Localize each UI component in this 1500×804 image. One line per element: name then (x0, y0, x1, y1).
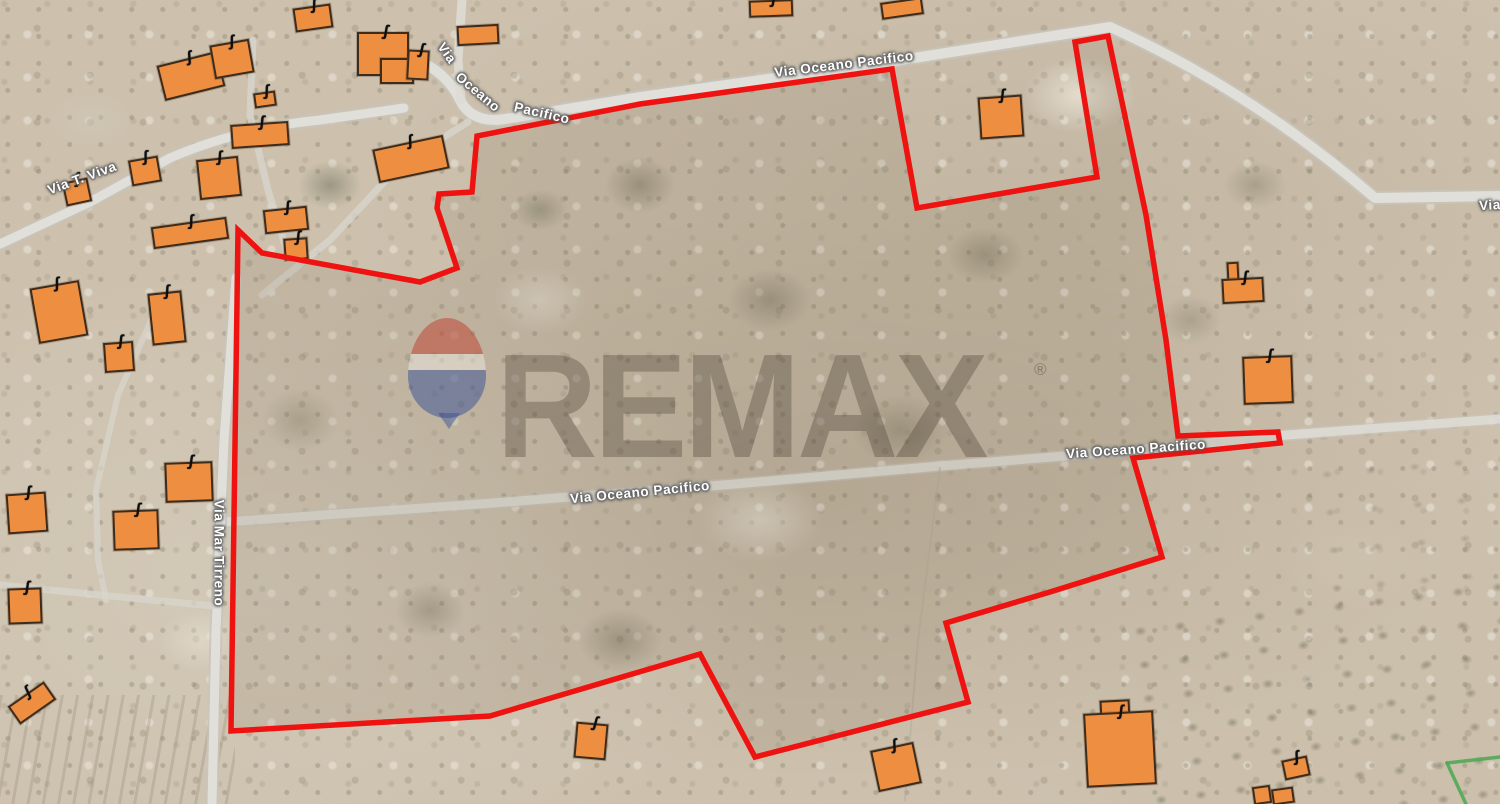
satellite-map-viewport[interactable]: ʃʃʃʃʃʃʃʃʃʃʃʃʃʃʃʃʃʃʃʃʃʃʃʃʃʃʃʃʃʃ Via Ocean… (0, 0, 1500, 804)
building-footprint: ʃ (870, 742, 922, 792)
remax-balloon-icon (438, 413, 460, 429)
building-marker-icon: ʃ (294, 230, 301, 246)
building-marker-icon: ʃ (54, 276, 59, 292)
street-label: Pacifico (513, 99, 572, 126)
building-marker-icon: ʃ (407, 134, 413, 150)
building-marker-icon: ʃ (25, 485, 32, 501)
building-footprint: ʃ (112, 509, 159, 551)
street-label: Via (435, 40, 460, 66)
street-label: Via Oceano Pacifico (569, 478, 710, 506)
building-footprint: ʃ (283, 237, 308, 261)
building-marker-icon: ʃ (187, 454, 195, 471)
building-footprint: ʃ (103, 341, 135, 373)
walking-path (1447, 757, 1500, 763)
building-marker-icon: ʃ (284, 200, 290, 216)
building-marker-icon: ʃ (891, 738, 897, 754)
road-casing (225, 419, 1500, 522)
building-footprint: ʃ (164, 461, 213, 503)
road (225, 419, 1500, 522)
olive-grove (1127, 575, 1500, 804)
building-footprint: ʃ (573, 722, 608, 761)
building-footprint: ʃ (1242, 355, 1294, 405)
building-marker-icon: ʃ (22, 684, 34, 701)
watermark-brand-text: REMAX (496, 347, 985, 467)
building-footprint: ʃ (978, 95, 1025, 140)
building-marker-icon: ʃ (264, 84, 270, 100)
building-marker-icon: ʃ (1241, 270, 1248, 287)
street-label: Via Oceano Pacifico (1066, 437, 1207, 462)
building-marker-icon: ʃ (311, 0, 317, 14)
building-footprint: ʃ (128, 156, 162, 187)
remax-watermark: REMAX ® (400, 305, 1100, 485)
building-marker-icon: ʃ (229, 34, 234, 50)
building-marker-icon: ʃ (23, 580, 31, 597)
walking-path (1447, 763, 1466, 804)
remax-balloon-icon (408, 318, 486, 418)
property-boundary (231, 36, 1280, 757)
building-marker-icon: ʃ (216, 150, 222, 166)
building-footprint (880, 0, 924, 20)
building-footprint: ʃ (7, 587, 42, 624)
building-footprint (457, 24, 500, 46)
building-footprint: ʃ (253, 91, 277, 109)
building-marker-icon: ʃ (591, 715, 600, 732)
street-label: Via Mar Tirreno (212, 500, 227, 607)
building-footprint: ʃ (230, 121, 290, 149)
building-marker-icon: ʃ (999, 88, 1006, 104)
building-marker-icon: ʃ (1294, 750, 1300, 766)
building-marker-icon: ʃ (164, 284, 170, 300)
building-footprint: ʃ (6, 492, 49, 535)
street-label: Via (1479, 197, 1500, 213)
building-marker-icon: ʃ (258, 115, 265, 131)
building-marker-icon: ʃ (186, 50, 192, 66)
olive-grove (1313, 412, 1500, 598)
building-footprint: ʃ (293, 3, 334, 32)
street-label: Via Oceano Pacifico (773, 48, 914, 80)
building-footprint: ʃ (209, 39, 254, 79)
building-footprint: ʃ (1221, 277, 1264, 304)
building-footprint: ʃ (749, 0, 794, 18)
building-marker-icon: ʃ (117, 334, 124, 350)
building-footprint: ʃ (8, 681, 57, 724)
building-marker-icon: ʃ (188, 214, 194, 230)
building-marker-icon: ʃ (1266, 348, 1274, 365)
building-footprint: ʃ (1083, 710, 1157, 788)
building-marker-icon: ʃ (382, 24, 390, 41)
building-footprint: ʃ (196, 156, 242, 200)
building-footprint: ʃ (147, 290, 186, 345)
building-footprint: ʃ (1281, 756, 1311, 781)
building-marker-icon: ʃ (417, 42, 426, 59)
building-marker-icon: ʃ (134, 502, 142, 519)
building-footprint: ʃ (30, 280, 89, 344)
parcel-interior-tint (231, 36, 1280, 757)
building-footprint: ʃ (372, 135, 449, 183)
building-footprint (1252, 785, 1272, 804)
building-footprint: ʃ (151, 217, 229, 249)
building-marker-icon: ʃ (143, 150, 148, 166)
building-marker-icon: ʃ (1117, 704, 1124, 721)
street-label: Oceano (453, 69, 503, 115)
building-footprint: ʃ (406, 49, 430, 80)
building-marker-icon: ʃ (770, 0, 778, 8)
building-footprint (1271, 787, 1295, 804)
building-footprint: ʃ (263, 206, 309, 234)
registered-trademark-icon: ® (1034, 360, 1047, 380)
